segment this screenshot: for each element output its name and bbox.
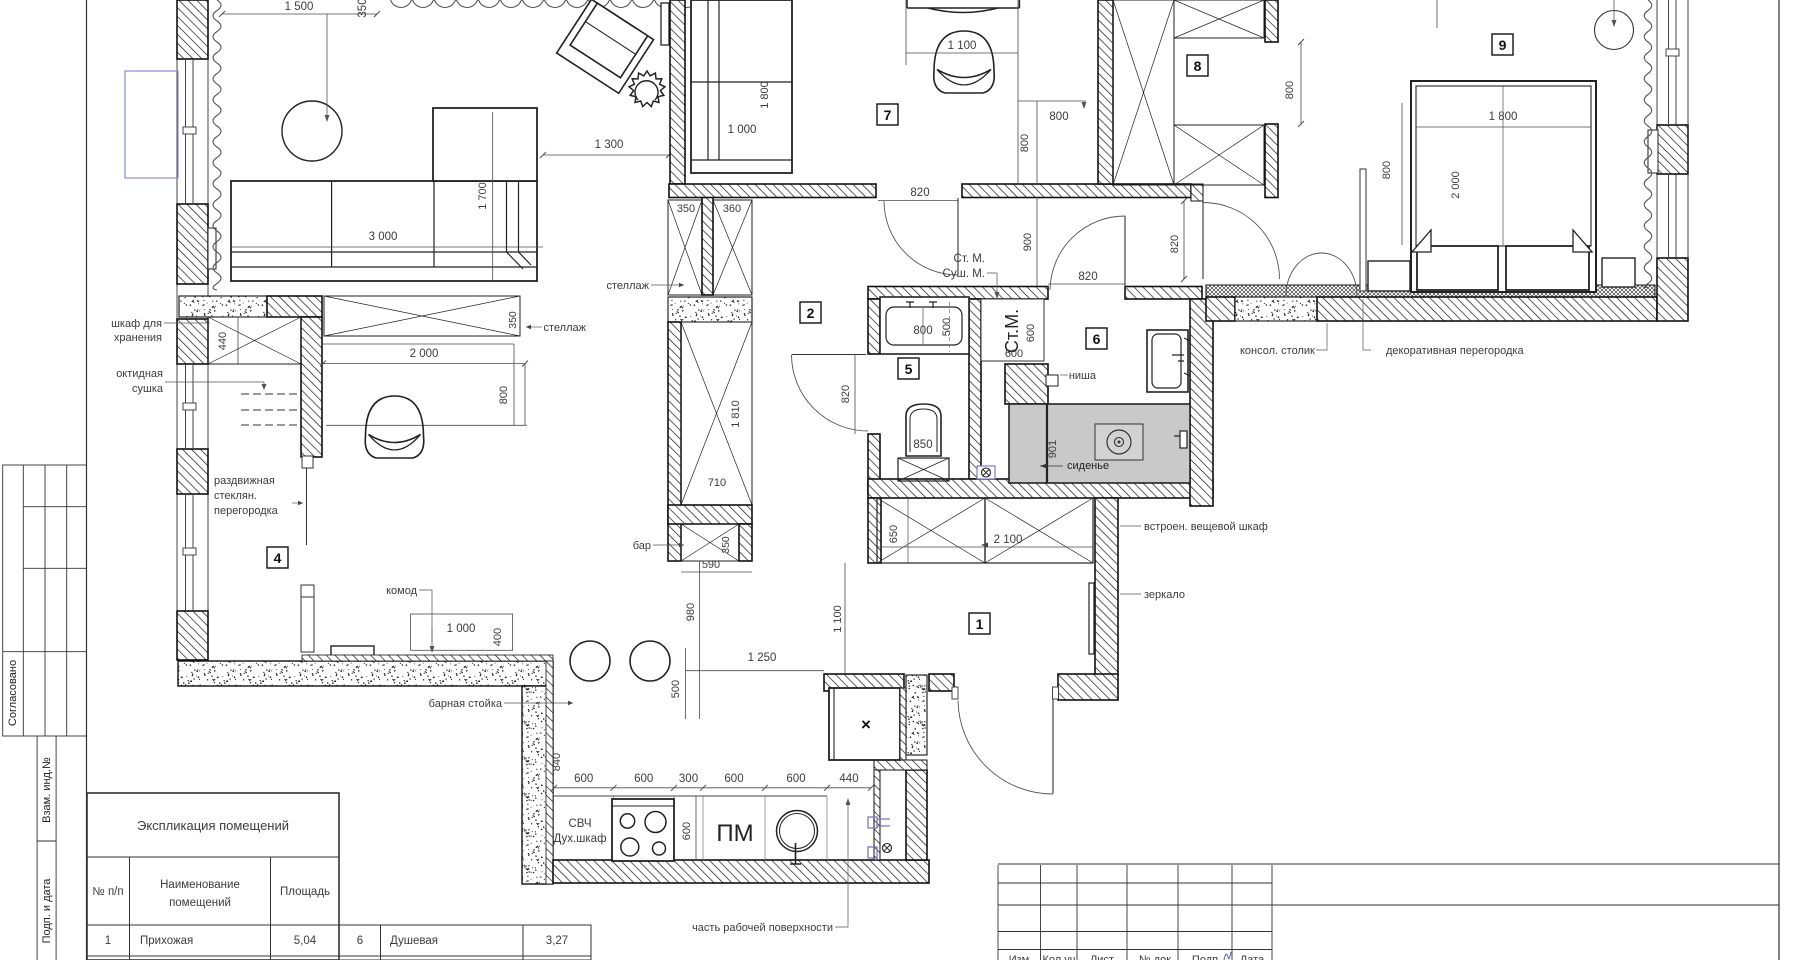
- svg-text:Наименование: Наименование: [160, 879, 240, 891]
- svg-text:хранения: хранения: [114, 332, 162, 344]
- svg-text:стеклян.: стеклян.: [214, 490, 257, 502]
- svg-text:1 800: 1 800: [759, 81, 771, 109]
- svg-text:1 810: 1 810: [730, 400, 742, 428]
- svg-text:600: 600: [574, 773, 593, 785]
- svg-text:барная стойка: барная стойка: [429, 698, 503, 710]
- svg-text:820: 820: [840, 385, 852, 403]
- svg-text:440: 440: [217, 332, 229, 350]
- svg-text:Ст.М.: Ст.М.: [1002, 309, 1022, 353]
- svg-text:Прихожая: Прихожая: [140, 935, 193, 947]
- svg-text:8: 8: [1194, 58, 1202, 74]
- svg-text:раздвижная: раздвижная: [214, 475, 275, 487]
- svg-text:1 000: 1 000: [728, 124, 757, 136]
- svg-text:1 700: 1 700: [477, 182, 489, 210]
- svg-text:600: 600: [681, 822, 693, 840]
- svg-text:600: 600: [1025, 324, 1037, 342]
- svg-text:820: 820: [910, 187, 929, 199]
- svg-text:№ п/п: № п/п: [92, 886, 123, 898]
- svg-text:360: 360: [723, 203, 741, 215]
- svg-text:600: 600: [634, 773, 653, 785]
- svg-text:901: 901: [1047, 440, 1059, 458]
- svg-text:800: 800: [498, 386, 510, 404]
- svg-text:800: 800: [1019, 134, 1031, 152]
- svg-text:650: 650: [888, 525, 900, 543]
- svg-text:ниша: ниша: [1069, 370, 1097, 382]
- svg-text:5: 5: [905, 361, 913, 377]
- svg-text:600: 600: [786, 773, 805, 785]
- svg-text:3,27: 3,27: [546, 935, 568, 947]
- svg-text:9: 9: [1499, 37, 1507, 53]
- svg-text:600: 600: [1005, 348, 1023, 360]
- svg-text:СВЧ: СВЧ: [568, 818, 591, 830]
- svg-text:1: 1: [105, 935, 111, 947]
- svg-text:980: 980: [685, 603, 697, 621]
- svg-text:шкаф для: шкаф для: [111, 318, 162, 330]
- svg-text:1: 1: [976, 616, 984, 632]
- svg-text:3 000: 3 000: [369, 231, 398, 243]
- svg-text:710: 710: [708, 477, 726, 489]
- svg-text:850: 850: [913, 439, 932, 451]
- svg-text:2 100: 2 100: [994, 534, 1023, 546]
- svg-text:2 000: 2 000: [1450, 171, 1462, 199]
- svg-text:600: 600: [724, 773, 743, 785]
- svg-text:×: ×: [861, 715, 871, 734]
- svg-text:800: 800: [1049, 111, 1068, 123]
- svg-text:Подп. и дата: Подп. и дата: [41, 878, 53, 944]
- svg-text:Подп: Подп: [1192, 954, 1218, 960]
- svg-text:Экспликация помещений: Экспликация помещений: [137, 818, 289, 833]
- svg-text:1 300: 1 300: [595, 139, 624, 151]
- svg-text:5,04: 5,04: [294, 935, 317, 947]
- svg-text:Ст. М.: Ст. М.: [954, 253, 985, 265]
- svg-text:стеллаж: стеллаж: [607, 280, 650, 292]
- svg-text:1 100: 1 100: [948, 40, 977, 52]
- svg-text:440: 440: [839, 773, 858, 785]
- svg-text:зеркало: зеркало: [1144, 589, 1185, 601]
- svg-text:Кол.уч: Кол.уч: [1043, 954, 1076, 960]
- svg-text:7: 7: [884, 107, 892, 123]
- svg-text:октидная: октидная: [116, 368, 163, 380]
- svg-text:часть рабочей поверхности: часть рабочей поверхности: [692, 922, 833, 934]
- svg-text:Суш. М.: Суш. М.: [943, 268, 985, 280]
- svg-text:820: 820: [1169, 235, 1181, 253]
- svg-text:1 000: 1 000: [447, 623, 476, 635]
- svg-text:800: 800: [1381, 161, 1393, 179]
- svg-text:бар: бар: [633, 540, 651, 552]
- svg-text:стеллаж: стеллаж: [544, 322, 587, 334]
- svg-text:1 500: 1 500: [285, 1, 314, 13]
- svg-text:590: 590: [702, 559, 720, 571]
- svg-text:500: 500: [670, 680, 682, 698]
- svg-text:Лист: Лист: [1090, 954, 1114, 960]
- svg-text:820: 820: [1078, 271, 1097, 283]
- svg-text:350: 350: [357, 0, 369, 18]
- svg-text:декоративная перегородка: декоративная перегородка: [1386, 345, 1524, 357]
- svg-text:консол. столик: консол. столик: [1240, 345, 1315, 357]
- svg-text:1 100: 1 100: [832, 605, 844, 633]
- svg-text:Площадь: Площадь: [280, 886, 330, 898]
- svg-text:2 000: 2 000: [410, 348, 439, 360]
- svg-text:Дух.шкаф: Дух.шкаф: [553, 833, 606, 845]
- svg-text:800: 800: [1284, 81, 1296, 99]
- svg-text:комод: комод: [386, 585, 417, 597]
- svg-text:350: 350: [720, 536, 732, 554]
- svg-text:2: 2: [807, 305, 815, 321]
- svg-text:1 250: 1 250: [748, 652, 777, 664]
- svg-text:помещений: помещений: [169, 897, 231, 909]
- svg-text:900: 900: [1022, 233, 1034, 251]
- svg-text:500: 500: [941, 318, 953, 336]
- svg-text:6: 6: [357, 935, 363, 947]
- svg-text:перегородка: перегородка: [214, 505, 279, 517]
- svg-text:встроен. вещевой шкаф: встроен. вещевой шкаф: [1144, 521, 1268, 533]
- svg-text:6: 6: [1093, 331, 1101, 347]
- svg-text:4: 4: [274, 550, 282, 566]
- svg-text:350: 350: [507, 311, 519, 329]
- svg-text:400: 400: [492, 628, 504, 646]
- svg-text:350: 350: [677, 203, 695, 215]
- svg-text:Дата: Дата: [1240, 954, 1265, 960]
- svg-text:Согласовано: Согласовано: [7, 660, 19, 726]
- svg-text:№ док: № док: [1139, 954, 1171, 960]
- svg-text:сушка: сушка: [132, 383, 164, 395]
- svg-text:Душевая: Душевая: [390, 935, 438, 947]
- svg-text:300: 300: [679, 773, 698, 785]
- svg-text:Изм: Изм: [1009, 954, 1030, 960]
- svg-text:840: 840: [551, 753, 563, 771]
- svg-text:сиденье: сиденье: [1067, 460, 1109, 472]
- svg-text:ПМ: ПМ: [716, 820, 753, 847]
- svg-text:Взам. инд.№: Взам. инд.№: [41, 757, 53, 823]
